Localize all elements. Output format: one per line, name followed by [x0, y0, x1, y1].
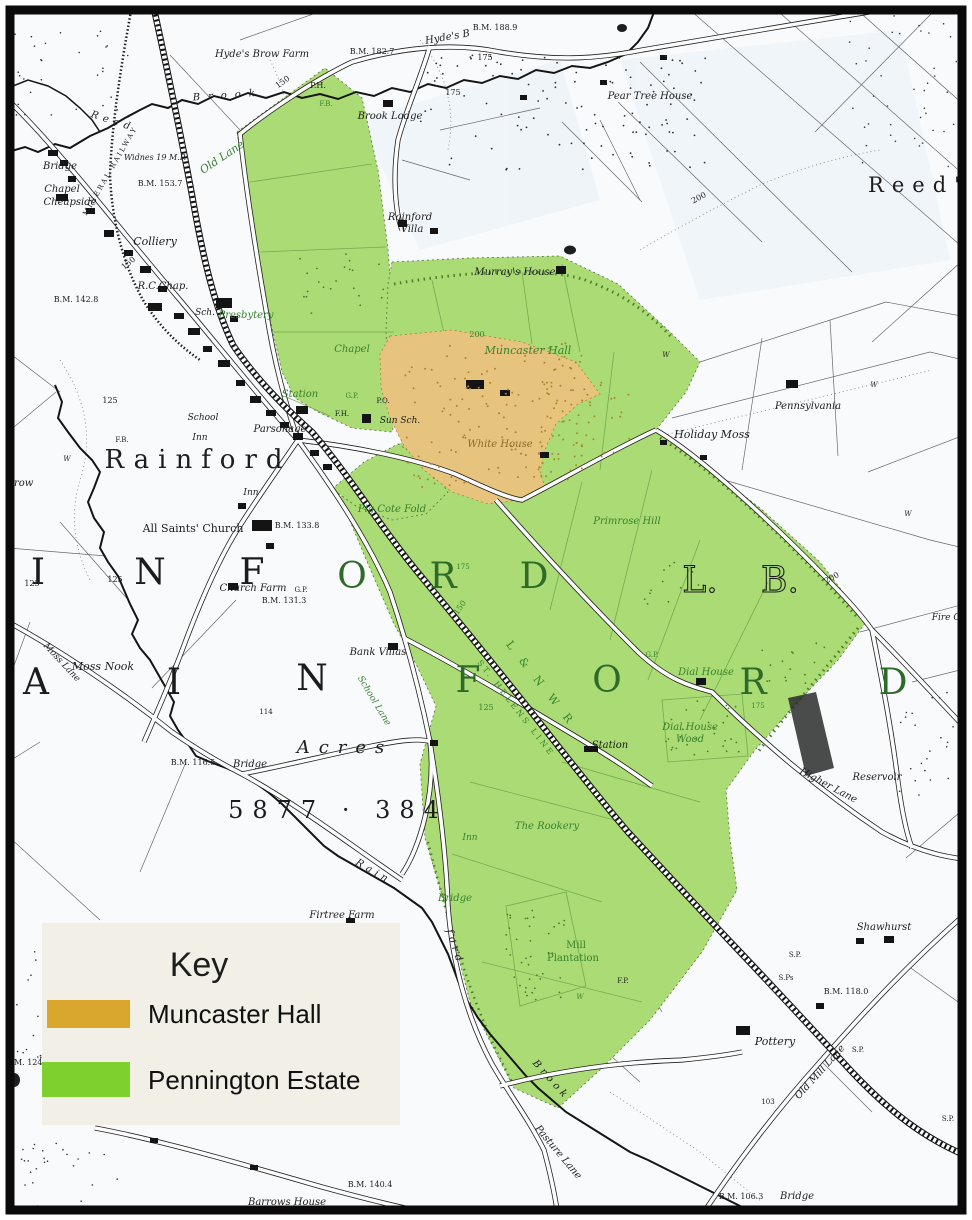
map-label: Inn [242, 488, 258, 498]
map-label: 175 [445, 88, 460, 97]
building [556, 266, 566, 274]
parish-letter: D [879, 662, 908, 703]
map-label: G.P. [345, 392, 358, 400]
map-label: Mill [566, 940, 586, 951]
parish-letter: I [167, 662, 181, 703]
map-label: 175 [477, 53, 492, 62]
map-label: School [188, 413, 219, 423]
map-label: B.M. 182.7 [350, 47, 395, 56]
map-label: Moss Nook [71, 660, 135, 673]
map-label: P.H. [310, 81, 326, 90]
map-label: W [870, 381, 878, 389]
map-label: Widnes 19 M.P. [124, 153, 186, 162]
building [362, 414, 371, 423]
map-label: White House [467, 439, 532, 450]
map-label: Firtree Farm [308, 910, 374, 921]
building [238, 503, 246, 509]
map-label: Pennsylvania [774, 401, 841, 412]
parish-letter: B. [761, 560, 799, 601]
building [148, 303, 162, 311]
map-label: B.M. 140.4 [348, 1180, 393, 1189]
parish-letter: D [520, 556, 549, 597]
map-label: 114 [259, 708, 273, 716]
map-label: Presbytery [218, 310, 274, 321]
map-label: F.H. [335, 410, 349, 418]
building [216, 298, 232, 308]
map-label: Holiday Moss [673, 428, 750, 441]
building [218, 360, 230, 367]
map-label: 103 [761, 1098, 774, 1106]
map-label: Pottery [754, 1035, 796, 1048]
map-canvas: INFORDL.B.AINFORD Hyde's Brow FarmHyde's… [0, 0, 972, 1220]
map-label: Cheapside [43, 197, 96, 208]
building [188, 328, 200, 335]
parish-letter: R [429, 556, 457, 597]
map-label: 175 [751, 702, 764, 710]
map-label: P.O. [376, 397, 389, 405]
parish-letter: R [739, 662, 767, 703]
map-label: B.M. 133.8 [275, 521, 320, 530]
building [150, 1138, 158, 1143]
map-label: Wood [676, 734, 704, 745]
building [700, 455, 707, 460]
map-label: B.M. 142.8 [54, 295, 99, 304]
building [520, 95, 527, 100]
map-label: Inn [191, 433, 207, 443]
key-panel: Key Muncaster Hall Pennington Estate [42, 923, 400, 1125]
map-label: Bridge [437, 893, 472, 904]
building [68, 176, 76, 182]
building [323, 464, 332, 470]
map-label: 200 [469, 330, 484, 339]
map-label: Pear Tree House [607, 91, 693, 102]
building [466, 380, 484, 389]
map-label: 125 [24, 579, 39, 588]
building [140, 266, 151, 273]
map-label: R.C.Chap. [137, 281, 189, 292]
map-label: Pig Cote Fold [357, 504, 426, 515]
map-label: F.B. [319, 100, 332, 108]
map-label: Dial House [677, 667, 734, 678]
building [266, 410, 276, 416]
map-label: Primrose Hill [592, 516, 661, 527]
map-label: G.P. [294, 586, 307, 594]
building [736, 1026, 750, 1035]
map-label: Muncaster Hall [484, 344, 572, 357]
map-label: W [662, 351, 670, 359]
map-label: All Saints' Church [142, 522, 244, 535]
building [660, 440, 667, 445]
building [250, 1165, 258, 1170]
building [600, 80, 607, 85]
map-label: Sch. [195, 308, 215, 318]
map-label: Bank Villas [349, 647, 407, 658]
map-label: Inn [461, 833, 477, 843]
building [104, 230, 114, 237]
parish-letter: L. [682, 560, 717, 601]
map-label: S.P. [852, 1046, 864, 1054]
map-label: 125 [102, 396, 117, 405]
map-label: 125 [107, 575, 122, 584]
map-label: F.B. [115, 436, 128, 444]
building [296, 406, 308, 414]
map-label: B.M. 188.9 [473, 23, 518, 32]
map-label: Station [592, 740, 629, 751]
building [174, 313, 184, 319]
building [884, 936, 894, 943]
map-label: 5877 · 384 [228, 796, 448, 824]
map-label: Church Farm [219, 583, 286, 594]
map-label: Chapel [334, 344, 370, 355]
map-label: Murray's House [473, 267, 555, 278]
map-label: 175 [456, 563, 469, 571]
building [856, 938, 864, 944]
map-label: Chapel [44, 184, 80, 195]
key-swatch-muncaster-hall [47, 1000, 130, 1028]
map-label: W [63, 455, 71, 463]
map-label: Villa [401, 224, 424, 235]
building [786, 380, 798, 388]
building [383, 100, 393, 107]
parish-letter: N [296, 658, 328, 699]
building [696, 678, 706, 685]
map-label: Plantation [547, 953, 600, 964]
map-label: Sun Sch. [380, 416, 421, 426]
key-swatch-pennington-estate [42, 1062, 130, 1097]
map-label: Fire C [931, 613, 961, 623]
map-label: Brook Lodge [357, 111, 423, 122]
building [48, 150, 58, 156]
building [252, 520, 272, 531]
building [250, 396, 261, 403]
building [310, 450, 319, 456]
map-label: Colliery [133, 235, 177, 248]
parish-letter: F [456, 660, 481, 701]
building [236, 380, 245, 386]
map-label: B.M. 153.7 [138, 179, 183, 188]
key-label-pennington-estate: Pennington Estate [148, 1065, 361, 1095]
map-label: W [576, 993, 584, 1001]
map-label: Acres [295, 737, 394, 758]
building [430, 740, 438, 746]
map-label: S.P. [942, 1115, 954, 1123]
parish-letter: A [22, 662, 50, 703]
key-title: Key [170, 946, 229, 984]
map-label: Parsonage [253, 424, 307, 435]
map-label: Rainford [104, 445, 291, 475]
map-label: Station [282, 389, 319, 400]
map-label: B.M. 131.3 [262, 596, 307, 605]
map-label: Reservoir [852, 772, 903, 783]
map-label: Bridge [232, 759, 267, 770]
map-label: B.M. 106.3 [719, 1192, 764, 1201]
building [816, 1003, 824, 1009]
parish-letter: N [134, 552, 166, 593]
building [203, 346, 212, 352]
building [540, 452, 549, 458]
building [266, 543, 274, 549]
map-label: Rainford [387, 212, 432, 223]
building [430, 228, 438, 234]
key-label-muncaster-hall: Muncaster Hall [148, 999, 321, 1029]
parish-letter: O [592, 660, 622, 701]
building [500, 390, 510, 396]
map-label: Shawhurst [857, 922, 913, 933]
map-label: S.P. [789, 951, 801, 959]
map-screenshot: INFORDL.B.AINFORD Hyde's Brow FarmHyde's… [0, 0, 972, 1220]
map-label: S.Ps [779, 974, 794, 982]
map-label: W [904, 510, 912, 518]
map-label: G.P. [645, 651, 658, 659]
map-label: Bridge [42, 161, 77, 172]
parish-letter: O [337, 556, 367, 597]
map-label: F.P. [617, 977, 629, 985]
map-label: Bridge [779, 1191, 814, 1202]
map-label: Reed' [868, 173, 968, 197]
map-label: Hyde's Brow Farm [214, 49, 309, 60]
map-label: 125 [478, 703, 493, 712]
map-label: B.M. 118.0 [824, 987, 869, 996]
map-label: The Rookery [515, 821, 580, 832]
map-label: Dial House [661, 722, 718, 733]
map-label: B.M. 116.5 [171, 758, 216, 767]
